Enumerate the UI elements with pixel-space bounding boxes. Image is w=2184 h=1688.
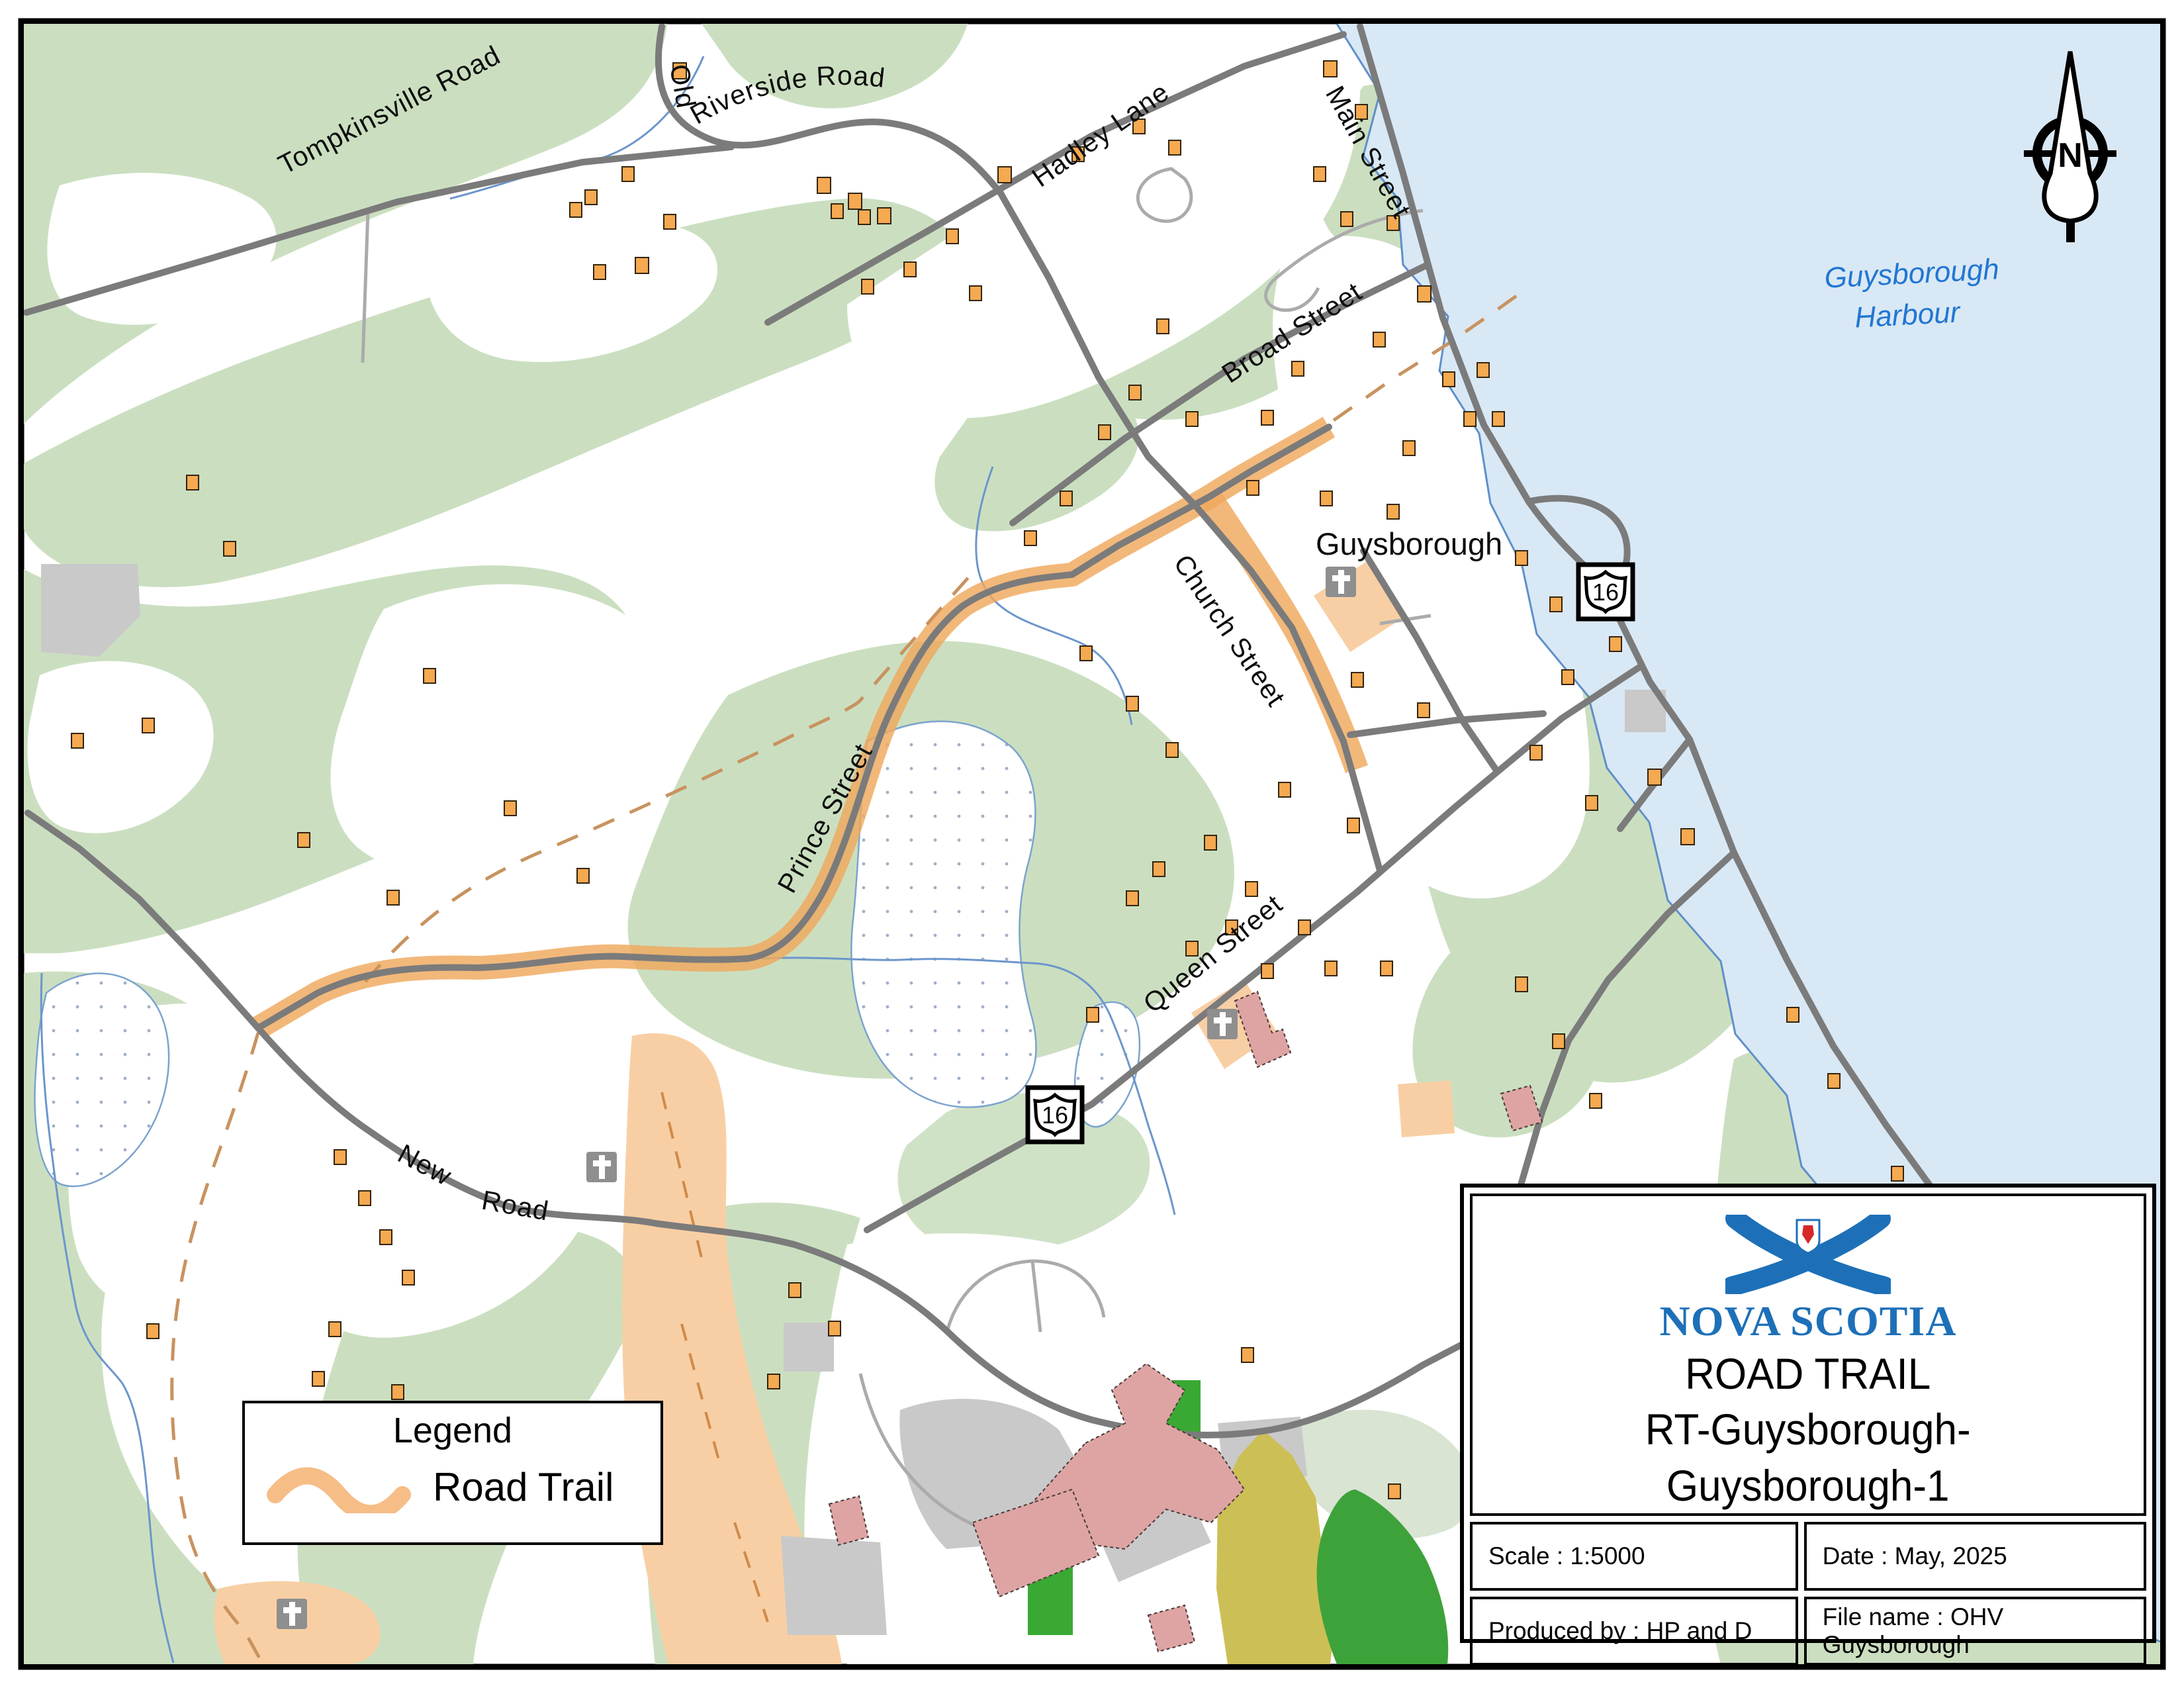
title-block: NOVA SCOTIA ROAD TRAIL RT-Guysborough- G…	[1460, 1184, 2156, 1643]
route-16-shield-south	[1028, 1088, 1082, 1142]
file-name-field: File name : OHV Guysborough	[1804, 1597, 2146, 1665]
map-title: ROAD TRAIL RT-Guysborough- Guysborough-1	[1645, 1346, 1971, 1513]
map-title-line2: RT-Guysborough-	[1645, 1401, 1971, 1457]
produced-by-field: Produced by : HP and D	[1470, 1597, 1798, 1665]
nova-scotia-wordmark: NOVA SCOTIA	[1659, 1297, 1956, 1346]
date-field: Date : May, 2025	[1804, 1522, 2146, 1591]
title-main-cell: NOVA SCOTIA ROAD TRAIL RT-Guysborough- G…	[1470, 1194, 2146, 1516]
title-row-2: Produced by : HP and D File name : OHV G…	[1470, 1597, 2146, 1665]
title-row-1: Scale : 1:5000 Date : May, 2025	[1470, 1522, 2146, 1591]
road-trail-symbol	[263, 1460, 416, 1513]
map-title-line3: Guysborough-1	[1645, 1458, 1971, 1513]
route-16-shield-north	[1578, 565, 1633, 619]
legend-road-trail-label: Road Trail	[433, 1464, 614, 1510]
map-page: 16	[0, 0, 2184, 1688]
map-title-line1: ROAD TRAIL	[1645, 1346, 1971, 1401]
nova-scotia-flag-icon	[1725, 1215, 1891, 1294]
svg-text:Harbour: Harbour	[1854, 296, 1962, 334]
label-town: Guysborough	[1316, 526, 1502, 561]
north-letter: N	[2058, 136, 2083, 175]
legend-box: Legend Road Trail	[242, 1401, 663, 1545]
scale-field: Scale : 1:5000	[1470, 1522, 1798, 1591]
legend-title: Legend	[245, 1410, 660, 1451]
